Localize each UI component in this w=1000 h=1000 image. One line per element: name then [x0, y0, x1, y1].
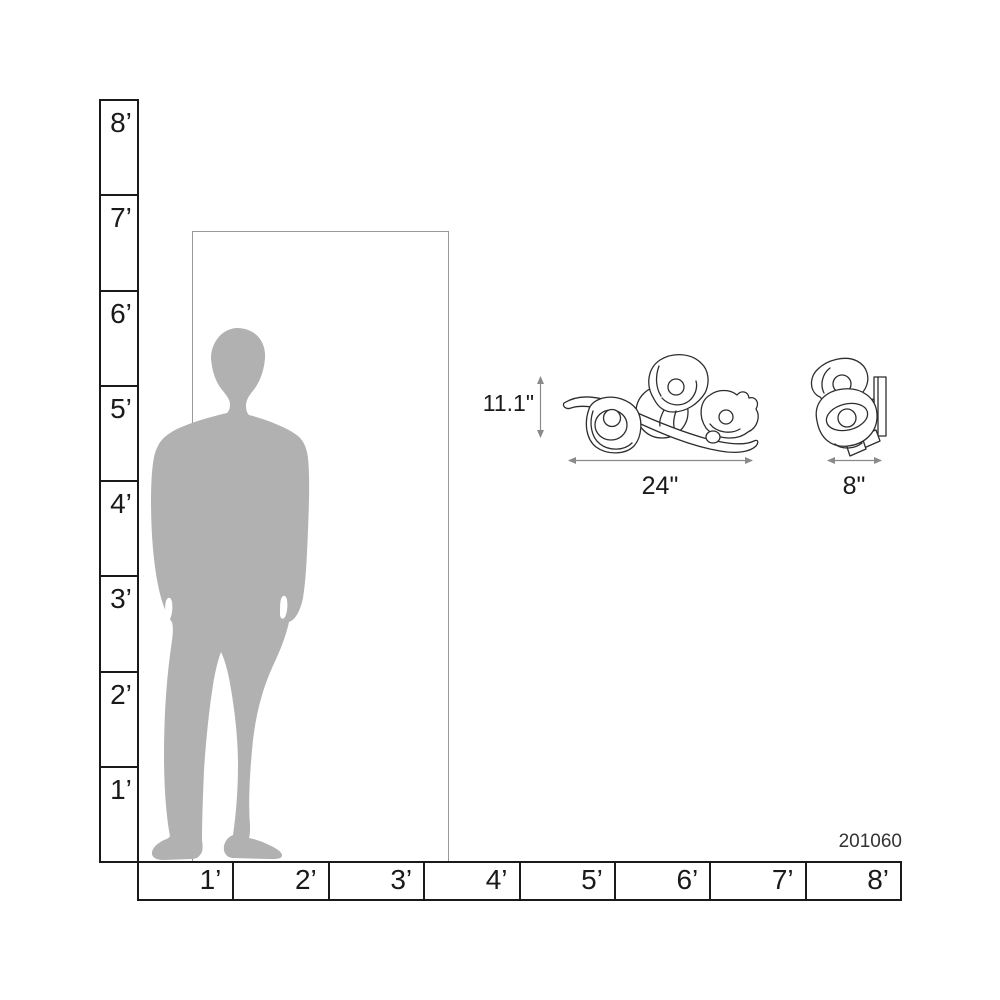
horizontal-ruler-label: 3’ [390, 866, 423, 896]
vertical-ruler-label: 5’ [106, 387, 132, 423]
depth-dimension-label: 8" [814, 472, 894, 501]
vertical-ruler-label: 6’ [106, 292, 132, 328]
standing-man-silhouette [151, 328, 309, 860]
horizontal-ruler-cell: 4’ [423, 863, 518, 899]
wall-sconce-side-view [811, 358, 886, 456]
horizontal-ruler-label: 5’ [581, 866, 614, 896]
vertical-ruler-label: 8’ [106, 101, 132, 137]
horizontal-ruler-label: 6’ [676, 866, 709, 896]
horizontal-ruler-cell: 2’ [232, 863, 327, 899]
vertical-ruler-cell: 6’ [101, 290, 137, 385]
horizontal-ruler-cell: 5’ [519, 863, 614, 899]
horizontal-ruler-label: 8’ [867, 866, 900, 896]
horizontal-ruler-cell: 6’ [614, 863, 709, 899]
vertical-ruler-cell: 4’ [101, 480, 137, 575]
horizontal-ruler-label: 4’ [486, 866, 519, 896]
horizontal-ruler-label: 7’ [772, 866, 805, 896]
horizontal-ruler-cell: 1’ [139, 863, 232, 899]
horizontal-ruler-cell: 3’ [328, 863, 423, 899]
horizontal-ruler-cell: 8’ [805, 863, 900, 899]
vertical-ruler-cell: 7’ [101, 194, 137, 289]
vertical-ruler-cell: 3’ [101, 575, 137, 670]
horizontal-ruler-label: 1’ [200, 866, 233, 896]
wall-sconce-front-view [563, 355, 758, 453]
vertical-ruler-cell: 2’ [101, 671, 137, 766]
vertical-ruler-label: 2’ [106, 673, 132, 709]
horizontal-ruler-label: 2’ [295, 866, 328, 896]
vertical-scale-ruler: 8’ 7’ 6’ 5’ 4’ 3’ 2’ 1’ [99, 99, 139, 863]
horizontal-ruler-cell: 7’ [709, 863, 804, 899]
front-left-shade [586, 397, 640, 453]
front-right-shade [701, 391, 758, 444]
horizontal-scale-ruler: 1’ 2’ 3’ 4’ 5’ 6’ 7’ 8’ [137, 861, 902, 901]
vertical-ruler-cell: 8’ [101, 101, 137, 194]
vertical-ruler-label: 4’ [106, 482, 132, 518]
vertical-ruler-cell: 1’ [101, 766, 137, 861]
width-dimension-label: 24" [610, 472, 710, 501]
height-dimension-label: 11.1" [428, 390, 534, 417]
vertical-ruler-cell: 5’ [101, 385, 137, 480]
product-number: 201060 [780, 831, 902, 853]
vertical-ruler-label: 1’ [106, 768, 132, 804]
vertical-ruler-label: 7’ [106, 196, 132, 232]
vertical-ruler-label: 3’ [106, 577, 132, 613]
